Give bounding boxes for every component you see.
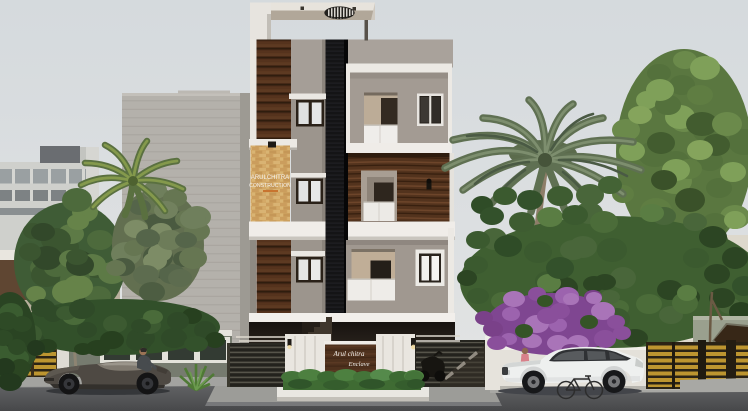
svg-text:Arul chitra: Arul chitra (333, 350, 365, 358)
svg-text:Enclave: Enclave (348, 361, 370, 368)
svg-text:ARULCHITRA: ARULCHITRA (251, 175, 289, 181)
svg-text:CONSTRUCTION: CONSTRUCTION (249, 183, 291, 189)
